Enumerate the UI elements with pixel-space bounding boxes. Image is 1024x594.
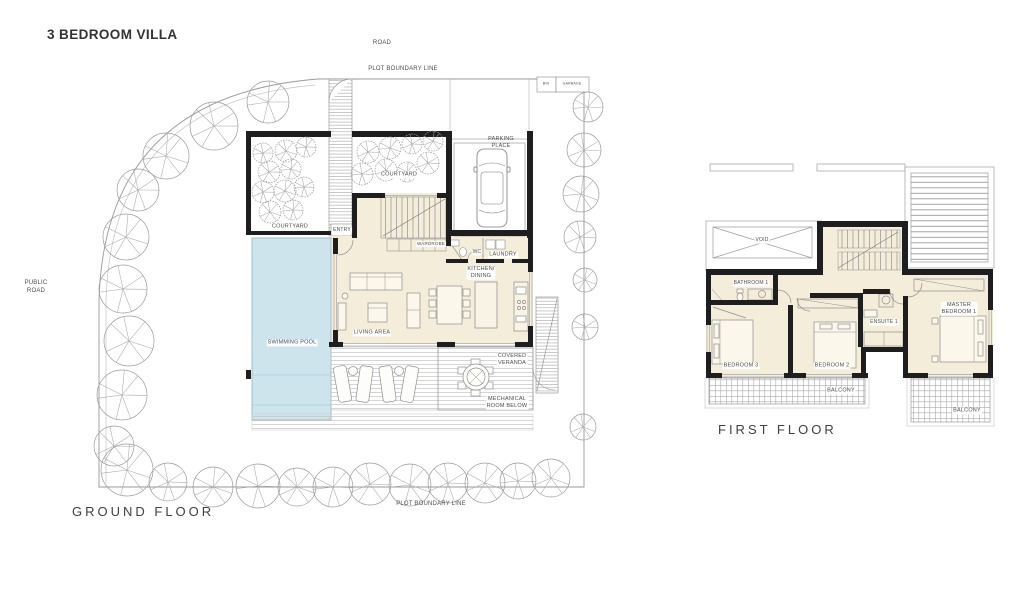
floor-plan-sheet: 3 BEDROOM VILLA ROAD PLOT BOUNDARY LINE … [0, 0, 1024, 594]
parking-place [454, 143, 525, 236]
first-floor-title: FIRST FLOOR [718, 422, 837, 437]
external-stair [533, 297, 558, 393]
ground-floor-plan [99, 77, 589, 487]
dining-set [429, 286, 470, 324]
pergola-louvers [905, 167, 994, 268]
entry-walkway [329, 79, 352, 236]
swimming-pool [252, 238, 331, 420]
footprint-notch [866, 352, 905, 378]
first-floor-plan [705, 164, 994, 426]
balconies [705, 378, 994, 426]
void-area [713, 227, 812, 258]
sheet-title: 3 BEDROOM VILLA [47, 27, 178, 42]
car [474, 149, 510, 227]
main-stair [381, 197, 447, 238]
bin-store [537, 77, 589, 92]
ground-floor-title: GROUND FLOOR [72, 504, 214, 519]
